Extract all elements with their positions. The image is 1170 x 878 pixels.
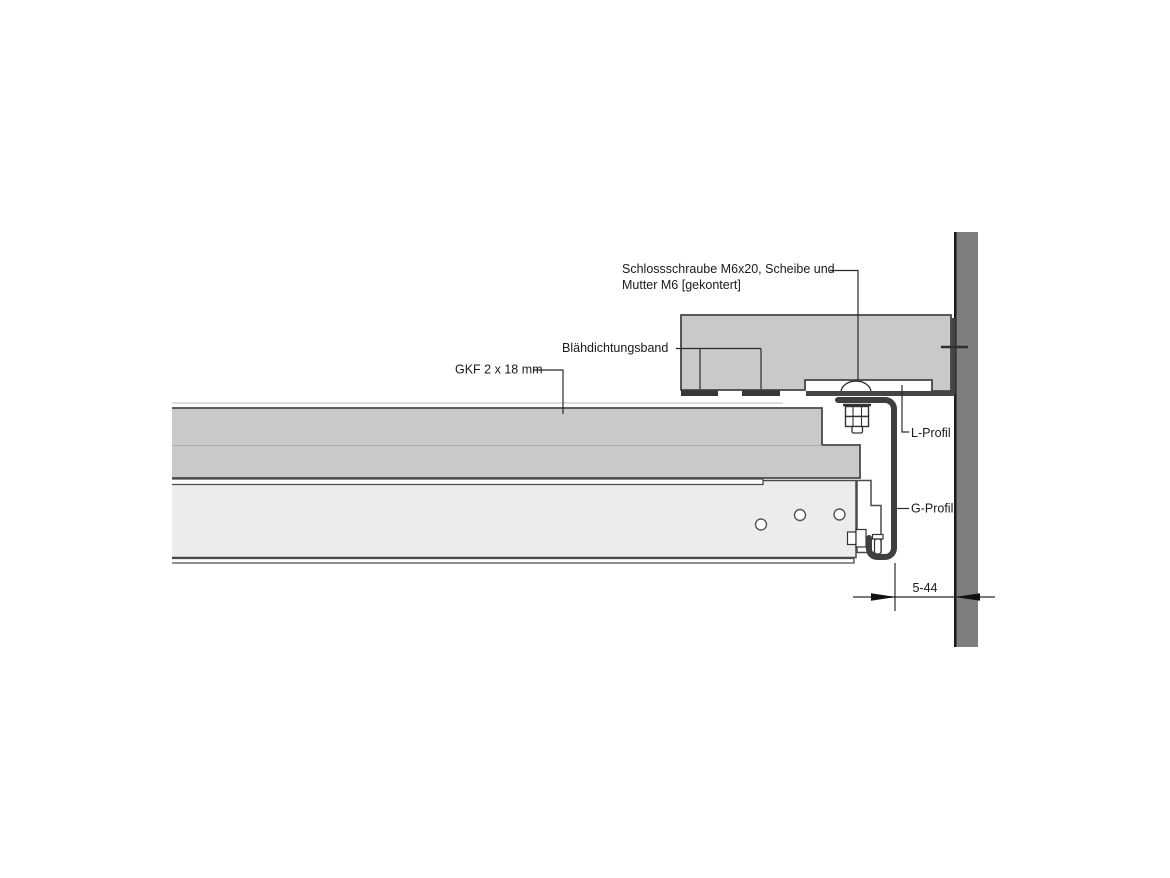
drawing-canvas: 5-44 Schlossschraube M6x20, Scheibe und …	[0, 0, 1170, 878]
screw-hole-3	[834, 509, 845, 520]
sealing-tape-strip-2	[742, 391, 780, 397]
dimension-arrow-left	[871, 593, 896, 601]
trim-pin	[875, 539, 882, 554]
dimension-text: 5-44	[912, 581, 937, 595]
lintel-block-body	[681, 315, 951, 391]
panel-top-sheet	[172, 479, 763, 485]
carriage-bolt-head	[841, 381, 871, 393]
wall-fill	[954, 232, 978, 647]
label-l-profile: L-Profil	[911, 426, 951, 440]
gkf-board	[172, 408, 860, 478]
hex-nut-1	[846, 407, 869, 417]
technical-detail-drawing: 5-44 Schlossschraube M6x20, Scheibe und …	[0, 0, 1170, 878]
wall-left-edge	[954, 232, 957, 647]
trim-screw-head	[848, 532, 857, 545]
panel-body	[172, 481, 856, 558]
label-sealing-tape: Blähdichtungsband	[562, 341, 668, 355]
gkf-board-assembly	[172, 403, 860, 478]
panel-assembly	[172, 479, 856, 563]
bolt-shaft-end	[852, 427, 863, 434]
bolt-fastening	[843, 405, 871, 433]
label-g-profile: G-Profil	[911, 502, 953, 516]
label-bolt-line2: Mutter M6 [gekontert]	[622, 278, 741, 292]
screw-hole-1	[756, 519, 767, 530]
lintel-block	[681, 315, 951, 396]
panel-bottom-sheet	[172, 559, 854, 564]
label-bolt-line1: Schlossschraube M6x20, Scheibe und	[622, 262, 835, 276]
wall-section	[954, 232, 978, 647]
screw-hole-2	[795, 510, 806, 521]
trim-screw-body	[856, 530, 866, 548]
sealing-tape-strip-1	[681, 391, 718, 397]
hex-nut-2	[846, 417, 869, 427]
trim-pin-cap	[873, 535, 884, 540]
label-board: GKF 2 x 18 mm	[455, 363, 543, 377]
